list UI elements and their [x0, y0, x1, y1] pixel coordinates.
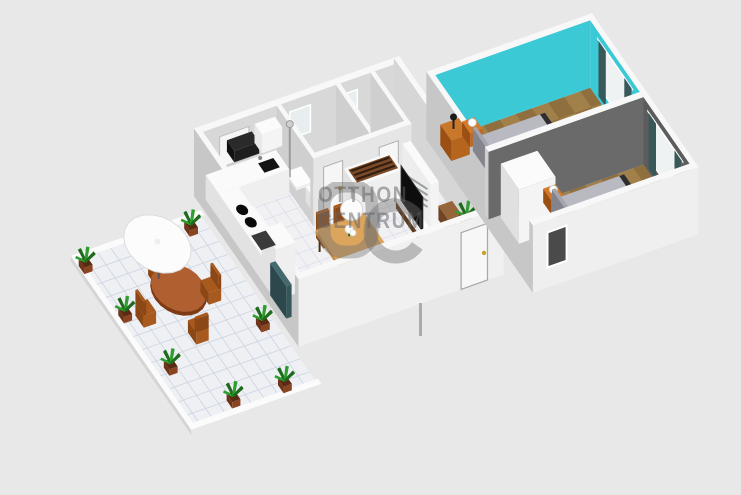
- kitchen-faucet: [258, 156, 262, 160]
- door-handle: [338, 186, 342, 190]
- radiator-front: [286, 284, 291, 318]
- pendant-lamp: [341, 199, 363, 221]
- front-wall-side: [295, 274, 299, 347]
- bedroom-front-window: [548, 226, 567, 268]
- nightstand-lamp: [468, 119, 476, 127]
- curtain: [649, 113, 656, 179]
- bathroom-front-wall-side: [310, 154, 313, 226]
- flower: [350, 230, 356, 236]
- floorplan-3d-view: OTTHON CENTRUM: [0, 0, 741, 495]
- patio-umbrella-knob: [154, 239, 160, 245]
- floorplan-scene: [0, 0, 741, 495]
- front-door: [461, 223, 487, 289]
- curtain: [599, 41, 606, 107]
- dining-chair-back-side: [334, 206, 336, 222]
- bedroom-front-wall-side: [529, 220, 533, 293]
- patio-chair-back-front: [219, 275, 221, 289]
- bedroom-divider-wall-side: [485, 147, 489, 220]
- patio-chair-back-front: [144, 301, 146, 315]
- door-handle: [482, 251, 486, 255]
- desk-lamp: [450, 114, 457, 121]
- shower-head: [286, 121, 293, 128]
- dining-chair-back-side: [316, 212, 318, 228]
- patio-chair-back-side: [195, 317, 197, 333]
